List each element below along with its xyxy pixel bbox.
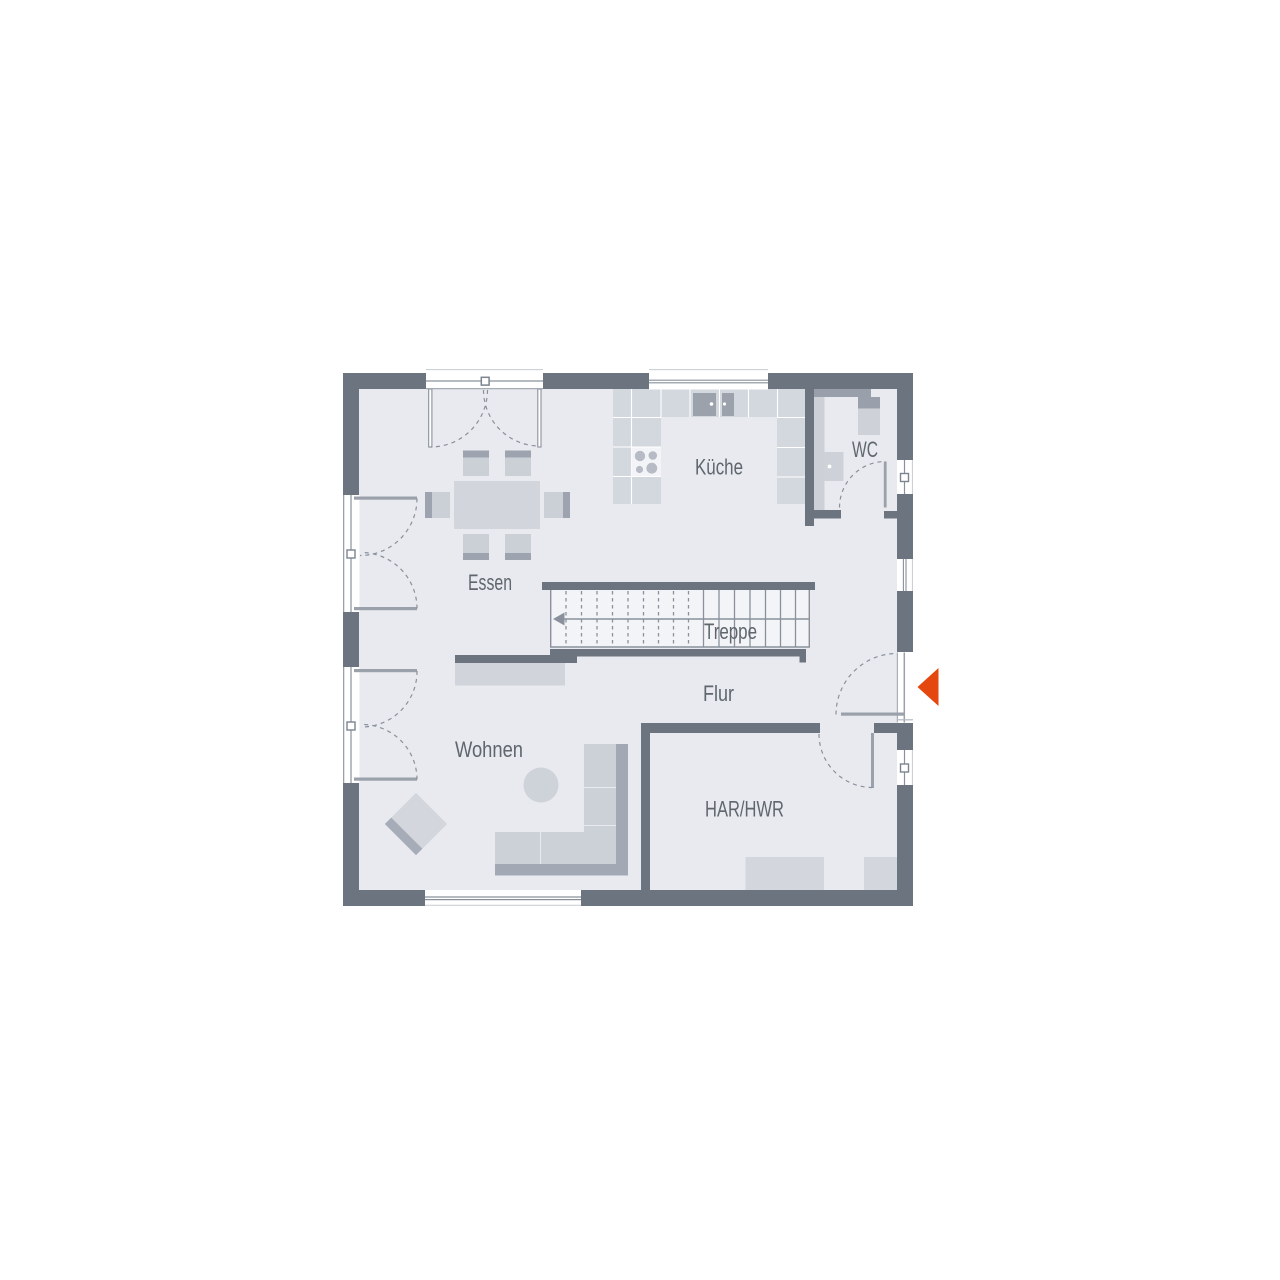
svg-text:WC: WC: [852, 437, 878, 462]
svg-text:Wohnen: Wohnen: [455, 737, 523, 762]
svg-text:Essen: Essen: [468, 570, 512, 595]
svg-text:HAR/HWR: HAR/HWR: [705, 797, 784, 822]
svg-text:Flur: Flur: [703, 681, 734, 706]
svg-text:Treppe: Treppe: [704, 619, 757, 644]
svg-text:Küche: Küche: [695, 455, 743, 480]
